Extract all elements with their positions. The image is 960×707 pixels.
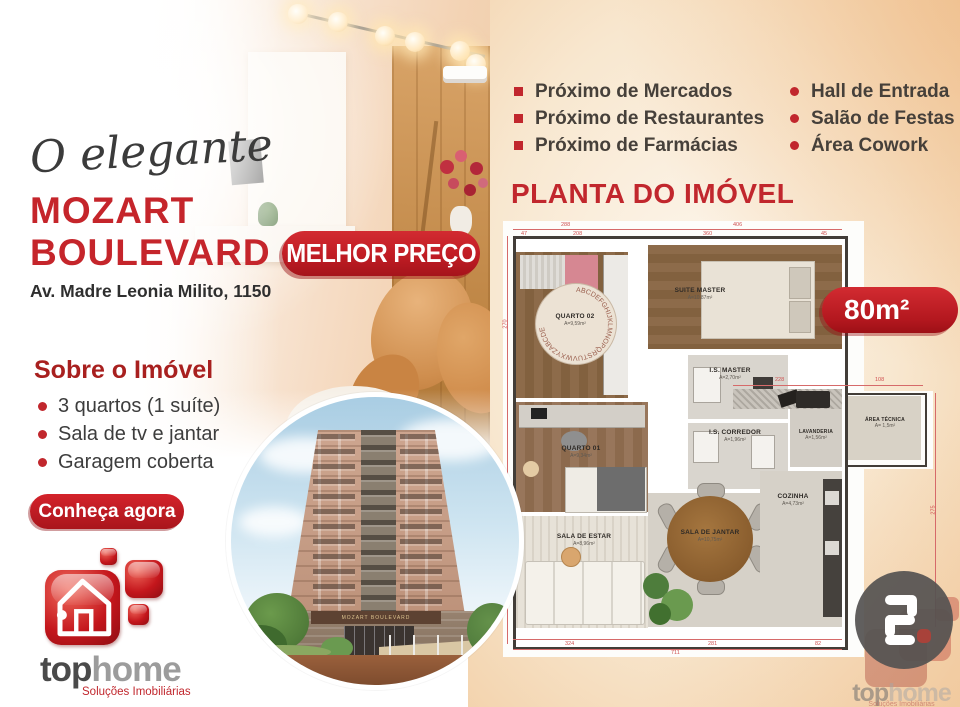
- coffee-table: [561, 547, 581, 567]
- tower-windows-right: [400, 434, 442, 612]
- dim-number: 288: [561, 222, 570, 228]
- about-list: 3 quartos (1 suíte) Sala de tv e jantar …: [36, 392, 220, 476]
- room-label: ÁREA TÉCNICAA= 1,5m²: [853, 417, 917, 430]
- kitchen-sink: [825, 541, 839, 555]
- watermark-circle: [855, 571, 953, 669]
- dim-line: [513, 229, 842, 230]
- logo-house-square: [45, 570, 120, 645]
- room-label: SUITE MASTERA=10,87m²: [655, 287, 745, 301]
- logo-word-top: top: [40, 650, 91, 689]
- tower-glass-strip: [361, 430, 396, 615]
- feature-list-right: Hall de Entrada Salão de Festas Área Cow…: [788, 78, 955, 159]
- feature-item: Próximo de Mercados: [512, 78, 764, 105]
- dim-line: [733, 385, 923, 386]
- about-item: 3 quartos (1 suíte): [36, 392, 220, 420]
- feature-item: Próximo de Farmácias: [512, 132, 764, 159]
- price-badge-label: MELHOR PREÇO: [286, 238, 476, 269]
- room-label: I.S. CORREDORA=1,96m²: [695, 429, 775, 443]
- dim-number: 406: [733, 222, 742, 228]
- feature-item: Área Cowork: [788, 132, 955, 159]
- cloud: [239, 507, 309, 537]
- room-label: SALA DE ESTARA=8,96m²: [539, 533, 629, 547]
- pillow: [789, 301, 811, 333]
- about-item: Garagem coberta: [36, 448, 220, 476]
- about-heading: Sobre o Imóvel: [34, 356, 213, 385]
- room-label: COZINHAA=4,73m²: [765, 493, 821, 507]
- price-badge: MELHOR PREÇO: [282, 231, 480, 276]
- building-sign: MOZART BOULEVARD: [311, 611, 441, 624]
- plant-floorplan: [649, 603, 671, 625]
- house-icon: [45, 570, 120, 645]
- logo-subtitle: Soluções Imobiliárias: [82, 686, 191, 698]
- logo-medium-square: [125, 560, 163, 598]
- tower-windows-left: [313, 434, 355, 612]
- dim-number: 47: [521, 231, 527, 237]
- watermark-glyph: [907, 595, 917, 617]
- dim-number: 108: [875, 377, 884, 383]
- area-badge-label: 80m²: [844, 294, 909, 326]
- room-label: LAVANDERIAA=1,56m²: [787, 429, 845, 442]
- building-sign-text: MOZART BOULEVARD: [342, 615, 411, 621]
- watermark-glyph: [885, 635, 915, 645]
- property-title-line1: MOZART: [30, 192, 360, 229]
- logo-tiny-square: [128, 604, 149, 625]
- watermark-glyph: [885, 615, 895, 637]
- gray-blanket: [597, 467, 645, 511]
- area-badge: 80m²: [822, 287, 958, 333]
- plan-heading: PLANTA DO IMÓVEL: [511, 178, 794, 210]
- laptop: [531, 408, 547, 419]
- logo-word-home: home: [91, 650, 180, 689]
- building-photo: MOZART BOULEVARD: [226, 392, 524, 690]
- watermark-subtitle: Soluções Imobiliárias: [843, 701, 960, 707]
- dim-number: 228: [775, 377, 784, 383]
- dim-number: 281: [708, 641, 717, 647]
- apartment-tower: [288, 430, 465, 615]
- room-label: QUARTO 01A=9,34m²: [541, 445, 621, 459]
- tree: [467, 603, 517, 657]
- dim-number: 711: [671, 650, 680, 656]
- dim-number: 324: [565, 641, 574, 647]
- dim-line: [513, 639, 842, 640]
- side-table: [523, 461, 539, 477]
- dim-number: 275: [931, 505, 937, 514]
- feature-item: Salão de Festas: [788, 105, 955, 132]
- address: Av. Madre Leonia Milito, 1150: [30, 281, 271, 302]
- watermark-glyph-red: [917, 629, 931, 643]
- room-label: SALA DE JANTARA=10,75m²: [665, 529, 755, 543]
- feature-item: Hall de Entrada: [788, 78, 955, 105]
- logo-small-square: [100, 548, 117, 565]
- flyer-page: O elegante MOZART BOULEVARD Av. Madre Le…: [0, 0, 960, 707]
- dim-number: 82: [815, 641, 821, 647]
- about-item: Sala de tv e jantar: [36, 420, 220, 448]
- tophome-logo: tophome Soluções Imobiliárias: [40, 548, 225, 700]
- ground: [231, 655, 519, 685]
- cta-button[interactable]: Conheça agora: [30, 494, 184, 529]
- dim-number: 360: [703, 231, 712, 237]
- washing-machine: [796, 391, 830, 408]
- feature-item: Próximo de Restaurantes: [512, 105, 764, 132]
- stove: [825, 491, 839, 505]
- dim-number: 270: [503, 319, 509, 328]
- feature-list-left: Próximo de Mercados Próximo de Restauran…: [512, 78, 764, 159]
- dim-number: 45: [821, 231, 827, 237]
- room-label: QUARTO 02A=9,59m²: [535, 313, 615, 327]
- sofa: [525, 561, 645, 625]
- dim-number: 208: [573, 231, 582, 237]
- pillow: [789, 267, 811, 299]
- watermark-logo: tophome Soluções Imobiliárias: [843, 563, 960, 707]
- logo-wordmark: tophome: [40, 650, 181, 690]
- room-label: I.S. MASTERA=2,70m²: [695, 367, 765, 381]
